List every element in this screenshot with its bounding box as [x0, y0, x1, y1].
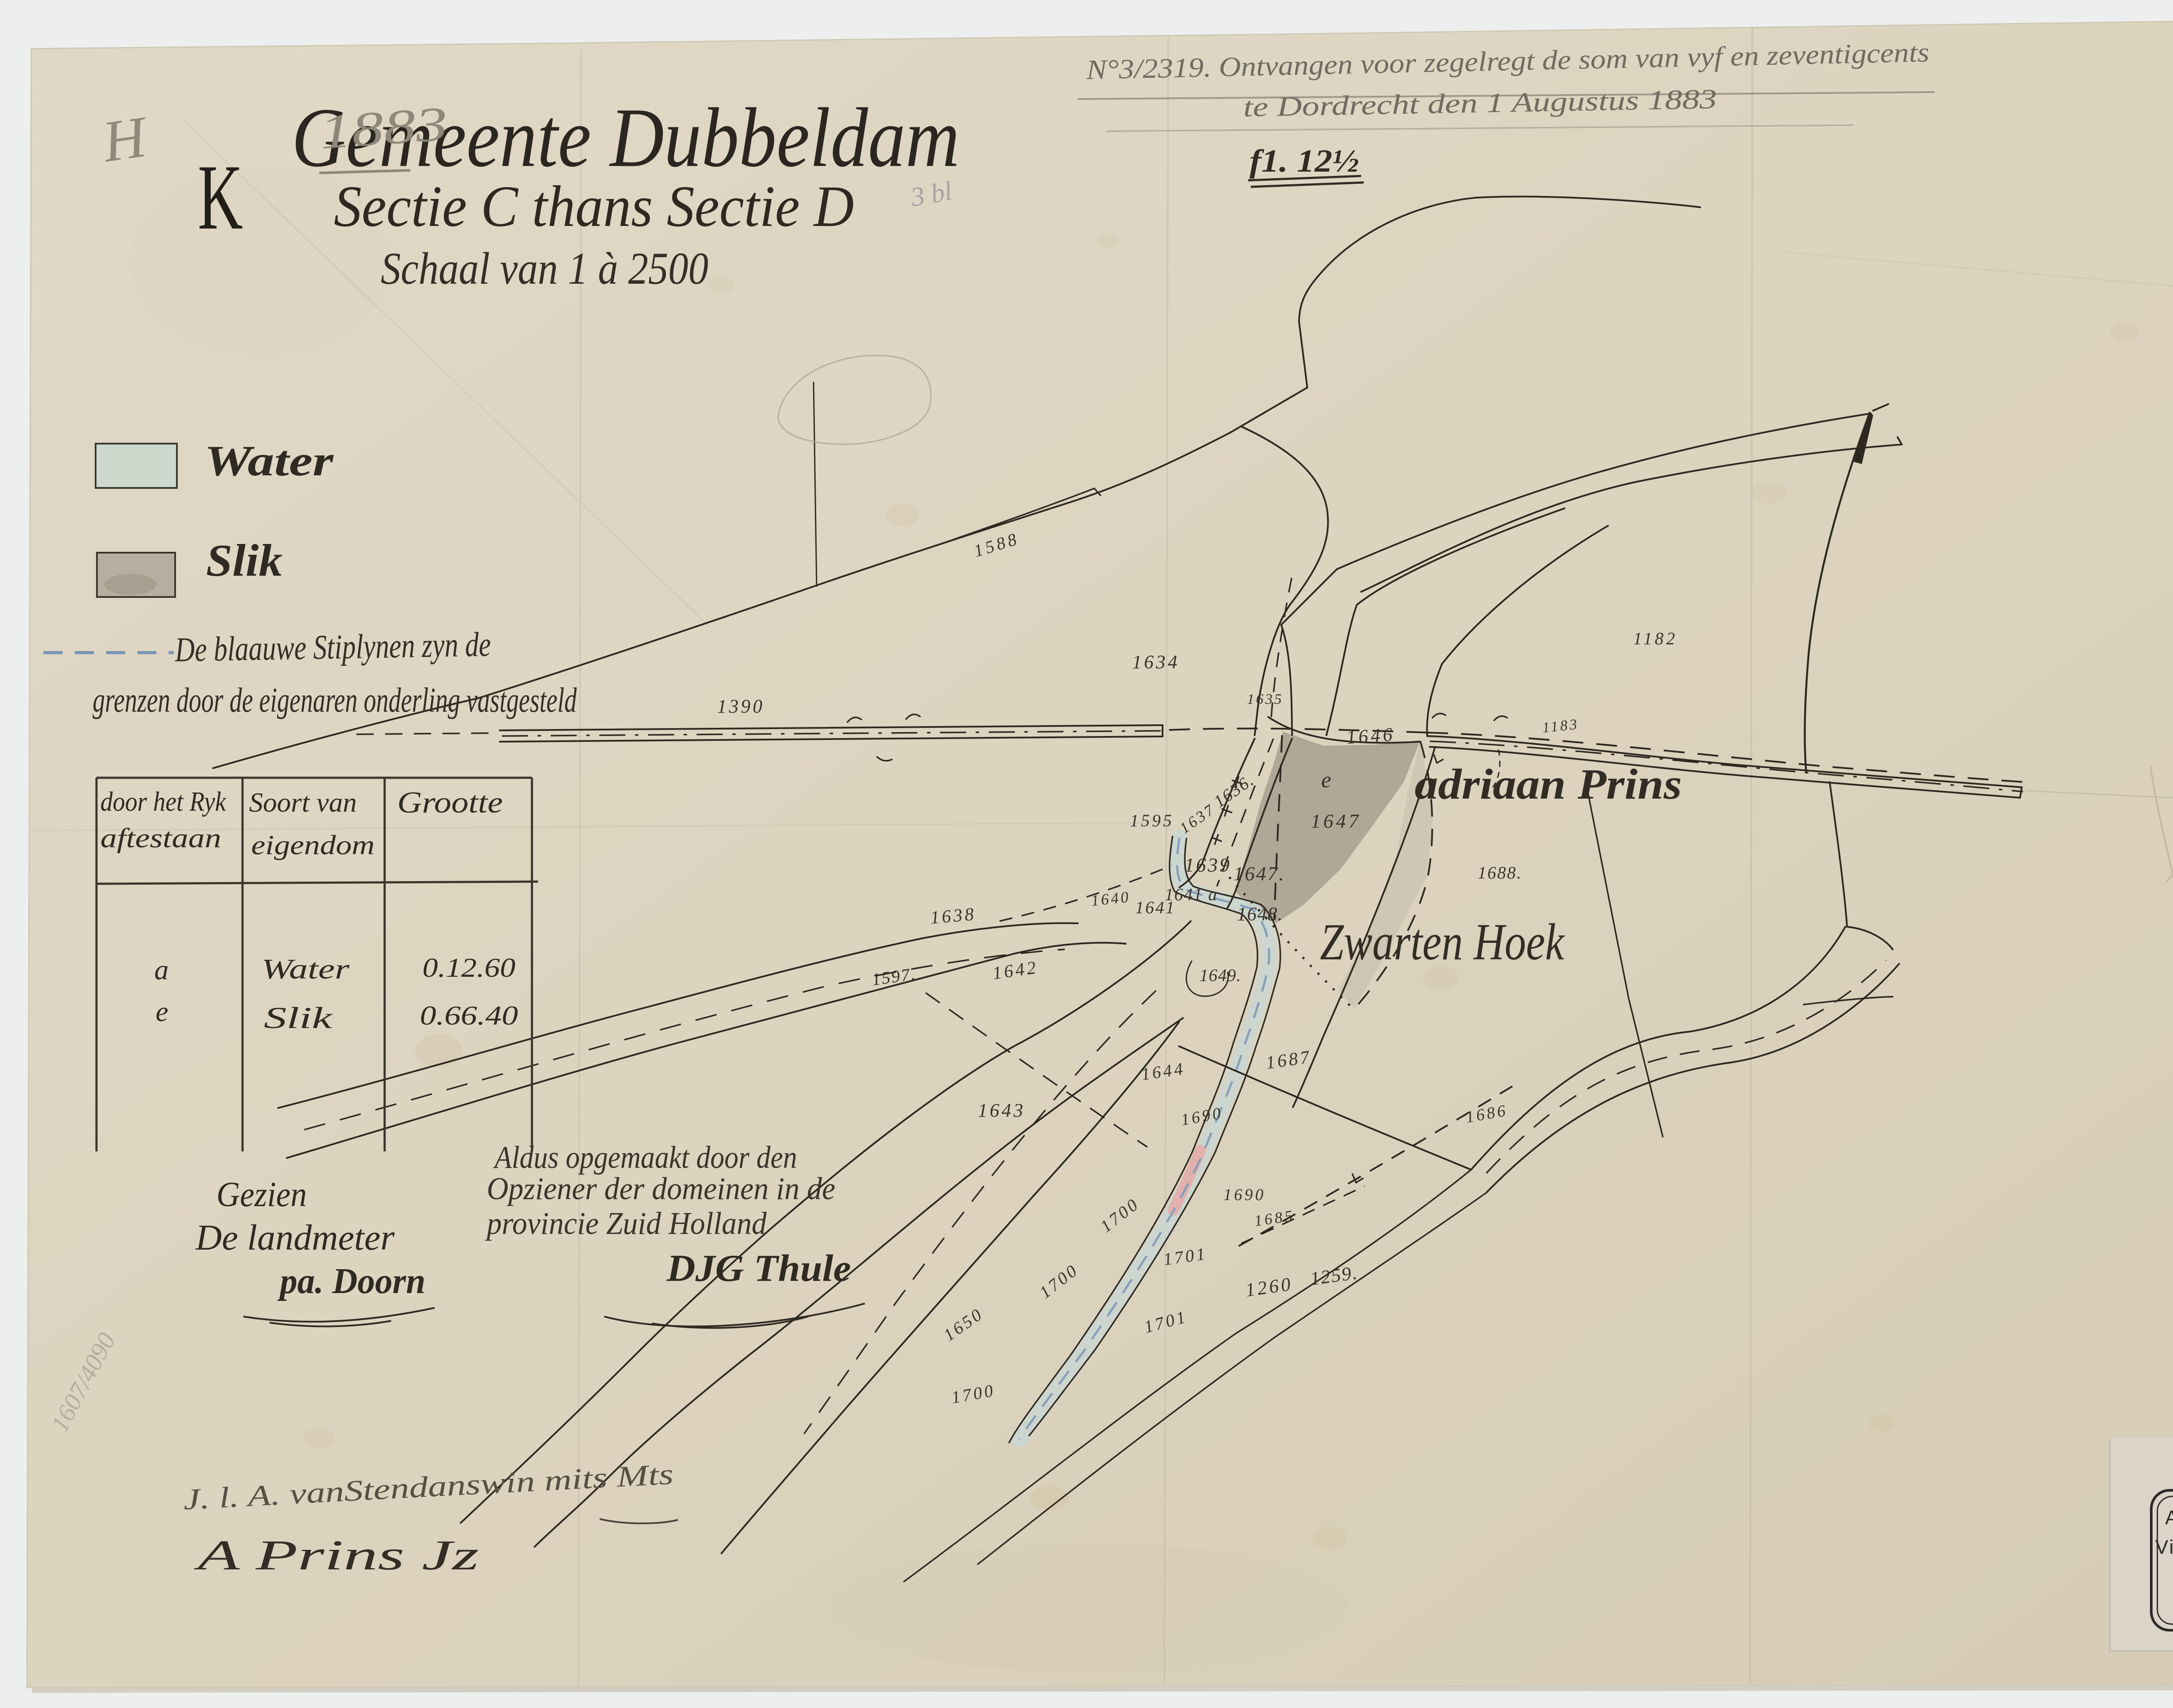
svg-text:e: e — [1321, 768, 1331, 793]
svg-text:1647.: 1647. — [1233, 862, 1284, 885]
svg-text:De landmeter: De landmeter — [195, 1217, 395, 1258]
svg-text:0.12.60: 0.12.60 — [422, 953, 515, 983]
svg-text:1883: 1883 — [318, 97, 449, 159]
svg-text:Slik: Slik — [264, 1002, 333, 1035]
svg-text:0.66.40: 0.66.40 — [420, 1001, 518, 1031]
svg-text:provincie Zuid Holland: provincie Zuid Holland — [485, 1206, 767, 1241]
svg-text:A Prins Jz: A Prins Jz — [193, 1532, 479, 1579]
svg-text:Vier Polders.: Vier Polders. — [2155, 1536, 2173, 1558]
svg-text:eigendom: eigendom — [251, 829, 375, 860]
svg-text:Slik: Slik — [206, 535, 282, 586]
svg-text:Archief der: Archief der — [2165, 1506, 2173, 1529]
svg-text:DJG Thule: DJG Thule — [666, 1247, 851, 1290]
svg-text:Opziener der domeinen in de: Opziener der domeinen in de — [487, 1171, 835, 1206]
svg-text:K: K — [198, 145, 243, 249]
svg-text:Zwarten Hoek: Zwarten Hoek — [1320, 913, 1565, 971]
svg-text:e: e — [156, 996, 168, 1028]
svg-text:1648.: 1648. — [1237, 903, 1283, 925]
svg-text:Soort van: Soort van — [249, 787, 357, 818]
svg-text:Water: Water — [261, 953, 349, 985]
svg-text:pa. Doorn: pa. Doorn — [277, 1261, 425, 1301]
svg-text:Gezien: Gezien — [216, 1174, 307, 1214]
svg-text:Aldus opgemaakt door den: Aldus opgemaakt door den — [493, 1140, 797, 1175]
svg-text:Grootte: Grootte — [397, 786, 503, 819]
svg-text:Schaal van 1 à 2500: Schaal van 1 à 2500 — [381, 243, 708, 294]
svg-text:Sectie C thans Sectie D: Sectie C thans Sectie D — [334, 174, 854, 239]
svg-text:f1. 12½: f1. 12½ — [1249, 143, 1359, 179]
svg-text:adriaan Prins: adriaan Prins — [1415, 760, 1682, 808]
svg-text:a: a — [154, 954, 169, 986]
svg-text:1649.: 1649. — [1199, 965, 1241, 985]
svg-text:De blaauwe Stiplynen zyn de: De blaauwe Stiplynen zyn de — [174, 625, 491, 669]
svg-text:Water: Water — [204, 437, 334, 485]
svg-text:door het Ryk: door het Ryk — [100, 786, 226, 817]
svg-text:grenzen door de eigenaren onde: grenzen door de eigenaren onderling vast… — [93, 681, 577, 720]
svg-text:aftestaan: aftestaan — [100, 822, 221, 853]
svg-text:1688.: 1688. — [1478, 863, 1521, 882]
